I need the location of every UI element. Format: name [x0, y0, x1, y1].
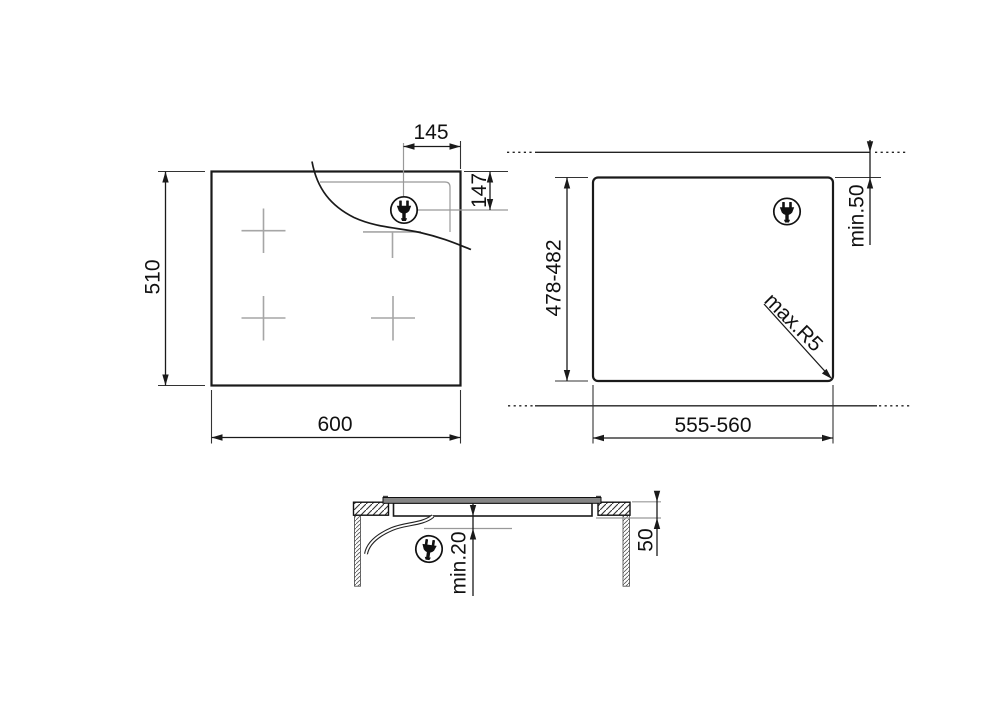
- hob-body-section: [394, 503, 593, 516]
- burner-cross-bottom-left: [242, 296, 286, 341]
- installation-drawing: 145 147 510 600: [0, 0, 999, 709]
- plug-offset-horizontal-label: 145: [413, 121, 448, 144]
- dimension-hob-height: 510: [141, 172, 205, 386]
- dimension-hob-width: 600: [212, 390, 461, 444]
- dimension-cutout-height: 478-482: [542, 178, 588, 382]
- drawing-svg: 145 147 510 600: [0, 0, 999, 709]
- corner-radius-label: max.R5: [760, 289, 827, 356]
- hob-outline: [212, 172, 461, 386]
- plug-offset-vertical-label: 147: [468, 173, 491, 208]
- hob-top-view: 145 147 510 600: [141, 121, 508, 444]
- corner-radius-callout: max.R5: [760, 289, 832, 379]
- dimension-rear-clearance: min.50: [835, 140, 881, 248]
- under-clearance-label: min.20: [447, 531, 470, 594]
- worktop-section-left: [354, 502, 389, 515]
- burner-cross-top-left: [242, 209, 286, 254]
- cabinet-wall-left: [355, 515, 361, 586]
- glass-top-section: [383, 498, 601, 504]
- hob-underside-rim-line: [320, 182, 450, 232]
- plug-icon: [414, 534, 444, 564]
- dimension-plug-offset-vertical: 147: [418, 172, 509, 211]
- plug-icon: [774, 198, 800, 224]
- dimension-cutout-width: 555-560: [593, 385, 833, 444]
- dimension-plug-offset-horizontal: 145: [404, 121, 461, 196]
- worktop-section-right: [598, 502, 630, 515]
- cutout-width-label: 555-560: [674, 414, 751, 437]
- cutout-height-label: 478-482: [542, 239, 565, 316]
- cabinet-wall-right: [623, 515, 630, 586]
- burner-cross-top-right: [363, 232, 421, 258]
- rear-clearance-label: min.50: [845, 184, 868, 247]
- hob-width-label: 600: [317, 413, 352, 436]
- cutout-view: 478-482 555-560 min.50 max.R5: [507, 140, 910, 444]
- installed-depth-label: 50: [634, 528, 657, 551]
- burner-cross-bottom-right: [371, 296, 415, 341]
- hob-height-label: 510: [141, 259, 164, 294]
- plug-icon: [391, 197, 417, 223]
- section-view: min.20 50: [354, 491, 662, 596]
